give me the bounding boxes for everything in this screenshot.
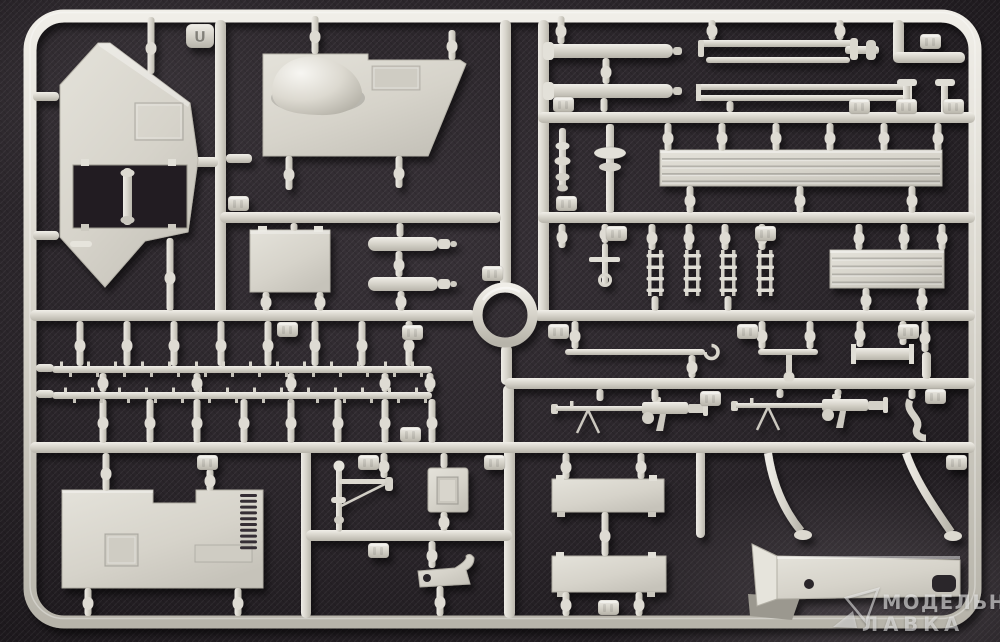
sprue-gate-bulge — [684, 232, 695, 245]
embossed-number — [610, 604, 613, 612]
sprue-gate — [909, 389, 916, 399]
tag-highlight — [927, 390, 945, 392]
rod-stub — [370, 399, 373, 403]
runner-vertical — [696, 450, 705, 538]
rod-stub — [249, 362, 252, 367]
sprue-gate-bulge — [286, 377, 297, 390]
rod-stub — [69, 373, 72, 377]
sprue-gate — [652, 389, 659, 401]
embossed-number — [494, 270, 497, 278]
sprue-gate-bulge — [435, 596, 446, 609]
ladder-rung — [757, 289, 775, 293]
embossed-number — [233, 200, 236, 208]
embossed-number — [951, 459, 954, 467]
louver-slot — [240, 546, 257, 549]
embossed-number — [955, 103, 958, 111]
louver-slot — [240, 523, 257, 526]
embossed-number — [240, 200, 243, 208]
embossed-number — [932, 38, 935, 46]
rod-stub — [316, 399, 319, 403]
louver-slot — [240, 494, 257, 497]
sprue-gate-bulge — [825, 132, 836, 145]
embossed-number — [496, 459, 499, 467]
louver-slot — [240, 517, 257, 520]
slat-ridge — [832, 275, 942, 276]
embossed-number — [289, 326, 292, 334]
tag-highlight — [199, 456, 217, 458]
sprue-gate-bulge — [404, 339, 415, 352]
rod-stub — [388, 388, 391, 393]
sprue-gate-bulge — [687, 361, 698, 374]
rod-stub — [334, 388, 337, 393]
sprue-gate-bulge — [601, 66, 612, 79]
rod-stub — [384, 362, 387, 367]
rod-stub — [307, 388, 310, 393]
sprue-gate-bulge — [795, 194, 806, 207]
ladder-rung — [684, 266, 702, 270]
runner-vertical — [538, 20, 549, 320]
embossed-number — [414, 329, 417, 337]
tag-highlight — [922, 35, 940, 37]
rod-stub — [285, 373, 288, 377]
ladder-rung — [647, 254, 665, 258]
sprue-gate-bulge — [636, 461, 647, 474]
rod-stub — [64, 388, 67, 393]
rod-stub — [177, 373, 180, 377]
sprue-gate-bulge — [647, 232, 658, 245]
rod-stub — [145, 388, 148, 393]
sprue-gate — [597, 389, 604, 401]
rod-stub — [168, 362, 171, 367]
sprue-gate-bulge — [233, 597, 244, 610]
rod-with-stubs-part — [52, 392, 432, 399]
runner-vertical — [503, 385, 514, 447]
sprue-gate-bulge — [854, 232, 865, 245]
embossed-number — [901, 103, 904, 111]
rod-stub — [231, 373, 234, 377]
embossed-number — [603, 604, 606, 612]
rod-stub — [235, 399, 238, 403]
tag-highlight — [898, 100, 916, 102]
sprue-gate-bulge — [861, 294, 872, 307]
sprue-gate-bulge — [771, 132, 782, 145]
rod-stub — [361, 388, 364, 393]
embossed-number — [209, 459, 212, 467]
sprue-gate-bulge — [286, 417, 297, 430]
sprue-gate — [226, 154, 252, 163]
sprue-gate-bulge — [379, 460, 390, 473]
embossed-number — [561, 200, 564, 208]
rod-stub — [226, 388, 229, 393]
sprue-gate-bulge — [717, 132, 728, 145]
slat-groove — [662, 181, 940, 183]
tag-highlight — [600, 601, 618, 603]
embossed-number — [363, 459, 366, 467]
sprue-gate-bulge — [634, 599, 645, 612]
sprue-gate-bulge — [315, 296, 326, 309]
watermark-line1: МОДЕЛЬНАЯ — [882, 591, 1000, 614]
embossed-number — [611, 230, 614, 238]
rod-stub — [330, 362, 333, 367]
sprue-gate-bulge — [239, 417, 250, 430]
tag-highlight — [279, 323, 297, 325]
sprue-gate — [652, 296, 659, 311]
sprue-gate-bulge — [933, 132, 944, 145]
sprue-gate-bulge — [169, 339, 180, 352]
rod-stub — [91, 388, 94, 393]
ladder-rung — [684, 289, 702, 293]
sprue-gate-bulge — [917, 294, 928, 307]
tag-highlight — [851, 100, 869, 102]
embossed-number — [282, 326, 285, 334]
runner-horizontal — [30, 310, 476, 321]
slat-ridge — [832, 259, 942, 260]
slat-groove — [832, 258, 942, 260]
sprue-gate-bulge — [447, 40, 458, 53]
tag-highlight — [484, 267, 502, 269]
embossed-number — [380, 547, 383, 555]
slat-ridge — [662, 175, 940, 176]
slat-ridge — [662, 167, 940, 168]
runner-horizontal — [30, 442, 975, 453]
ladder-rung — [684, 277, 702, 281]
sprue-gate-bulge — [561, 599, 572, 612]
slat-ridge — [662, 182, 940, 183]
sprue-gate-bulge — [101, 467, 112, 480]
rod-stub — [118, 388, 121, 393]
slat-groove — [662, 166, 940, 168]
embossed-number — [405, 431, 408, 439]
rod-stub — [276, 362, 279, 367]
rod-stub — [339, 373, 342, 377]
tag-highlight — [550, 325, 568, 327]
sprue-gate-bulge — [165, 272, 176, 285]
louver-slot — [240, 535, 257, 538]
photo-of-model-kit-sprue: U МОДЕЛЬНАЯ ЛАВКА — [0, 0, 1000, 642]
sprue-gate-bulge — [899, 232, 910, 245]
sprue-gate-bulge — [557, 231, 568, 244]
sprue-gate-bulge — [357, 339, 368, 352]
sprue-gate-bulge — [261, 296, 272, 309]
runner-horizontal — [538, 212, 975, 223]
tag-highlight — [402, 428, 420, 430]
rod-stub — [96, 373, 99, 377]
embossed-number — [742, 328, 745, 336]
rod-stub — [141, 362, 144, 367]
rod-stub — [204, 373, 207, 377]
sprue-gate-bulge — [439, 516, 450, 529]
tag-highlight — [486, 456, 504, 458]
sprue-gate — [835, 389, 842, 396]
rod-stub — [289, 399, 292, 403]
runner-horizontal — [505, 378, 975, 389]
embossed-number — [908, 103, 911, 111]
rod-stub — [181, 399, 184, 403]
runner-vertical — [215, 20, 226, 316]
rod-stub — [222, 362, 225, 367]
sprue-gate-bulge — [284, 168, 295, 181]
embossed-number — [407, 329, 410, 337]
sprue-gate-bulge — [685, 194, 696, 207]
ladder-rung — [757, 277, 775, 281]
embossed-number — [749, 328, 752, 336]
sprue-letter: U — [194, 28, 206, 46]
tag-highlight — [558, 197, 576, 199]
louver-slot — [240, 540, 257, 543]
embossed-number — [373, 547, 376, 555]
slat-groove — [662, 173, 940, 175]
sprue-gate-bulge — [600, 530, 611, 543]
embossed-number — [712, 395, 715, 403]
embossed-number — [930, 393, 933, 401]
louver-slot — [240, 500, 257, 503]
embossed-number — [370, 459, 373, 467]
sprue-gate-bulge — [380, 417, 391, 430]
slat-groove — [662, 158, 940, 160]
ladder-rung — [720, 289, 738, 293]
sprue-gate-bulge — [310, 30, 321, 43]
sprue-gate — [36, 364, 54, 372]
sprue-gate-bulge — [310, 339, 321, 352]
rod-stub — [154, 399, 157, 403]
tag-highlight — [702, 392, 720, 394]
slat-groove — [832, 266, 942, 268]
sprue-gate-bulge — [937, 232, 948, 245]
tag-highlight — [757, 227, 775, 229]
sprue-gate-bulge — [835, 25, 846, 38]
rod-stub — [114, 362, 117, 367]
sprue-gate-bulge — [394, 167, 405, 180]
runner-horizontal — [534, 310, 975, 321]
sprue-gate-bulge — [855, 329, 866, 342]
watermark-line2: ЛАВКА — [862, 613, 964, 636]
ladder-rung — [684, 254, 702, 258]
rod-stub — [199, 388, 202, 393]
sprue-gate-bulge — [75, 339, 86, 352]
tag-highlight — [945, 100, 963, 102]
embossed-number — [948, 103, 951, 111]
embossed-number — [558, 101, 561, 109]
embossed-number — [412, 431, 415, 439]
hatch-part — [428, 468, 468, 512]
embossed-number — [767, 230, 770, 238]
embossed-number — [903, 328, 906, 336]
sprue-gate-bulge — [805, 330, 816, 343]
sprue-gate-bulge — [83, 597, 94, 610]
embossed-number — [861, 103, 864, 111]
sprue-gate — [36, 390, 54, 398]
sprue-gate-bulge — [396, 296, 407, 309]
tag-highlight — [739, 325, 757, 327]
embossed-number — [618, 230, 621, 238]
rod-stub — [208, 399, 211, 403]
slat-ridge — [662, 160, 940, 161]
sprue-gate-bulge — [425, 377, 436, 390]
tag-highlight — [404, 326, 422, 328]
sprue-gate-bulge — [145, 417, 156, 430]
rod-stub — [195, 362, 198, 367]
rod-stub — [127, 399, 130, 403]
sprue-gate — [397, 223, 404, 237]
sprue-gate — [777, 389, 784, 398]
sprue-gate-bulge — [263, 339, 274, 352]
slat-groove — [832, 274, 942, 276]
sprue-gate-bulge — [333, 417, 344, 430]
runner-vertical — [500, 20, 511, 286]
rod-stub — [415, 388, 418, 393]
sprue-gate — [33, 92, 59, 101]
embossed-number — [958, 459, 961, 467]
sprue-gate-bulge — [556, 25, 567, 38]
rod-stub — [280, 388, 283, 393]
rod-stub — [366, 373, 369, 377]
louver-slot — [240, 506, 257, 509]
rod-stub — [262, 399, 265, 403]
embossed-number — [925, 38, 928, 46]
tag-highlight — [608, 227, 626, 229]
ladder-rung — [720, 254, 738, 258]
tag-highlight — [360, 456, 378, 458]
rod-stub — [303, 362, 306, 367]
sprue-gate-bulge — [720, 232, 731, 245]
sprue-gate-bulge — [570, 330, 581, 343]
rod-stub — [60, 362, 63, 367]
tag-highlight — [230, 197, 248, 199]
embossed-number — [705, 395, 708, 403]
rod-stub — [424, 399, 427, 403]
rod-stub — [258, 373, 261, 377]
louver-slot — [240, 511, 257, 514]
sprue-gate-bulge — [205, 475, 216, 488]
embossed-number — [487, 270, 490, 278]
louver-slot — [240, 529, 257, 532]
embossed-number — [489, 459, 492, 467]
sprue-gate-bulge — [122, 339, 133, 352]
rod-stub — [150, 373, 153, 377]
sprue-gate — [33, 231, 59, 240]
rod-stub — [420, 373, 423, 377]
sprue-gate — [291, 223, 298, 231]
embossed-number — [553, 328, 556, 336]
sprue-gate-bulge — [707, 25, 718, 38]
sprue-gate-bulge — [216, 339, 227, 352]
rod-stub — [172, 388, 175, 393]
embossed-number — [760, 230, 763, 238]
ladder-rung — [720, 277, 738, 281]
embossed-number — [568, 200, 571, 208]
sprue-gate-bulge — [561, 461, 572, 474]
embossed-number — [910, 328, 913, 336]
rod-stub — [357, 362, 360, 367]
rod-stub — [73, 399, 76, 403]
embossed-number — [937, 393, 940, 401]
sprue-gate — [725, 296, 732, 311]
ladder-rung — [647, 289, 665, 293]
rod-stub — [253, 388, 256, 393]
ladder-rung — [757, 266, 775, 270]
equipment-box-part — [250, 226, 330, 292]
embossed-number — [854, 103, 857, 111]
rod-stub — [312, 373, 315, 377]
sprue-gate-bulge — [98, 377, 109, 390]
tag-highlight — [900, 325, 918, 327]
rod-stub — [343, 399, 346, 403]
sprue-gate — [441, 453, 448, 468]
sprue-gate-bulge — [879, 132, 890, 145]
ladder-rung — [720, 266, 738, 270]
sprue-gate-bulge — [907, 194, 918, 207]
rod-with-stubs-part — [52, 366, 432, 373]
ladder-rung — [647, 266, 665, 270]
runner-horizontal — [306, 530, 512, 541]
embossed-number — [560, 328, 563, 336]
slat-groove — [832, 282, 942, 284]
sprue-letter-tab: U — [186, 24, 214, 48]
tag-highlight — [948, 456, 966, 458]
sprue-gate-bulge — [146, 42, 157, 55]
rod-stub — [123, 373, 126, 377]
rod-stub — [411, 362, 414, 367]
tag-highlight — [370, 544, 388, 546]
sprue-gate-bulge — [192, 417, 203, 430]
sprue-gate-bulge — [427, 549, 438, 562]
embossed-number — [202, 459, 205, 467]
runner-horizontal — [893, 52, 965, 63]
sprue-gate-bulge — [394, 259, 405, 272]
sprue-gate — [727, 101, 734, 112]
sprue-gate-bulge — [663, 132, 674, 145]
engine-deck-panel-part — [62, 490, 263, 588]
slat-ridge — [832, 283, 942, 284]
rod-stub — [393, 373, 396, 377]
runner-horizontal — [220, 212, 501, 223]
slat-ridge — [832, 267, 942, 268]
embossed-number — [565, 101, 568, 109]
sprue-gate-bulge — [427, 417, 438, 430]
rod-stub — [100, 399, 103, 403]
rod-stub — [397, 399, 400, 403]
ladder-rung — [757, 254, 775, 258]
sprue-gate — [601, 98, 608, 112]
sprue-gate-bulge — [98, 417, 109, 430]
rod-stub — [87, 362, 90, 367]
sprue-gate-bulge — [920, 332, 931, 345]
tag-highlight — [555, 98, 573, 100]
ladder-rung — [647, 277, 665, 281]
